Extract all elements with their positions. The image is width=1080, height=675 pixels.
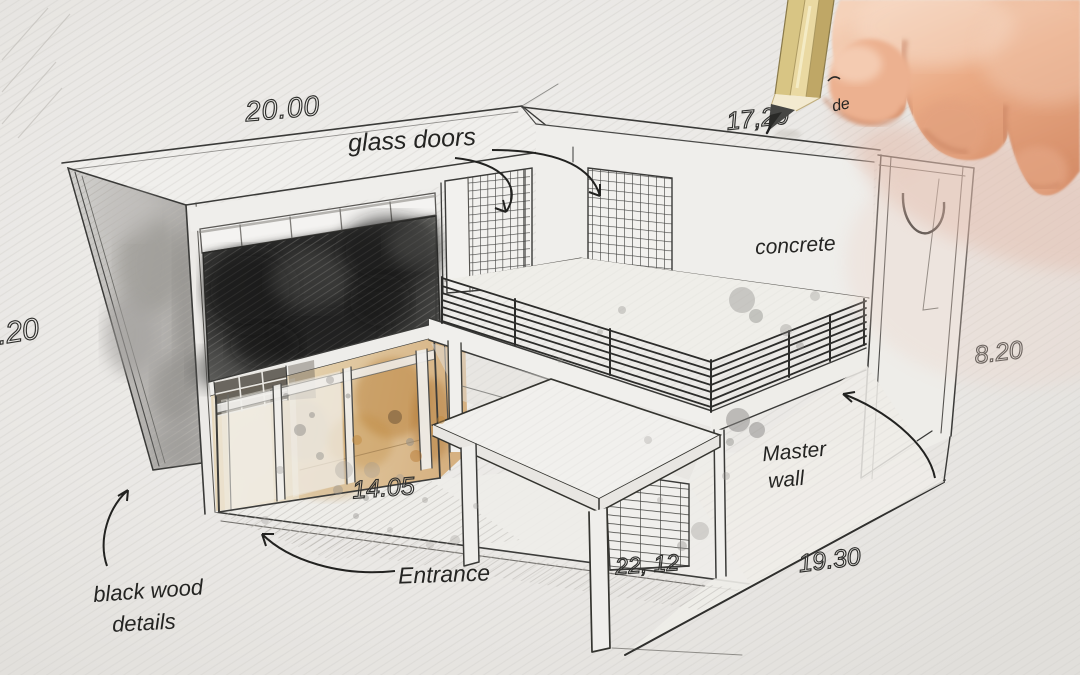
svg-text:concrete: concrete: [755, 232, 837, 259]
svg-text:14.05: 14.05: [351, 472, 415, 504]
svg-text:20.00: 20.00: [243, 90, 321, 128]
svg-text:22, 12: 22, 12: [613, 549, 680, 579]
svg-text:de: de: [831, 95, 852, 115]
svg-text:wall: wall: [767, 467, 806, 493]
svg-text:Entrance: Entrance: [398, 559, 491, 588]
svg-text:details: details: [111, 609, 176, 637]
